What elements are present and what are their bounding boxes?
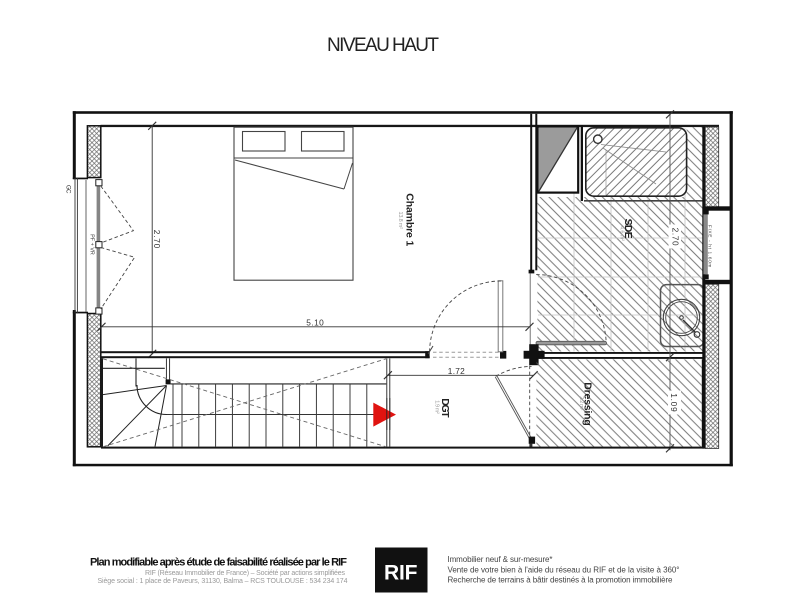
- svg-text:PF + VR: PF + VR: [88, 234, 94, 255]
- svg-text:RIF: RIF: [384, 562, 418, 585]
- svg-text:1.09: 1.09: [669, 393, 679, 412]
- svg-text:NIVEAU HAUT: NIVEAU HAUT: [327, 35, 439, 56]
- svg-text:5.10: 5.10: [306, 317, 324, 327]
- svg-text:Immobilier neuf & sur-mesure*: Immobilier neuf & sur-mesure*: [448, 555, 553, 564]
- svg-text:Vente de votre bien à l'aide d: Vente de votre bien à l'aide du réseau d…: [448, 566, 680, 575]
- svg-text:FIXE - ht 1.60m: FIXE - ht 1.60m: [707, 225, 713, 268]
- svg-text:Siège social : 1 place de Pave: Siège social : 1 place de Paveurs, 31130…: [98, 578, 348, 585]
- svg-text:1.9 m²: 1.9 m²: [433, 400, 439, 414]
- svg-text:Recherche de terrains à bâtir: Recherche de terrains à bâtir destinés à…: [448, 576, 674, 585]
- svg-text:1.72: 1.72: [448, 366, 465, 376]
- svg-text:2.70: 2.70: [670, 228, 680, 246]
- svg-text:2.70: 2.70: [152, 230, 162, 249]
- svg-text:DGT: DGT: [439, 398, 451, 418]
- svg-text:Plan modifiable après étude de: Plan modifiable après étude de faisabili…: [90, 556, 347, 568]
- svg-text:GC: GC: [64, 185, 70, 194]
- svg-text:Chambre 1: Chambre 1: [403, 193, 415, 246]
- svg-text:4.6 m²: 4.6 m²: [619, 226, 625, 241]
- svg-text:2.2 m²: 2.2 m²: [578, 396, 584, 410]
- svg-text:RIF (Réseau Immobilier de Fran: RIF (Réseau Immobilier de France) – Soci…: [145, 570, 346, 577]
- svg-text:13.8 m²: 13.8 m²: [397, 212, 403, 230]
